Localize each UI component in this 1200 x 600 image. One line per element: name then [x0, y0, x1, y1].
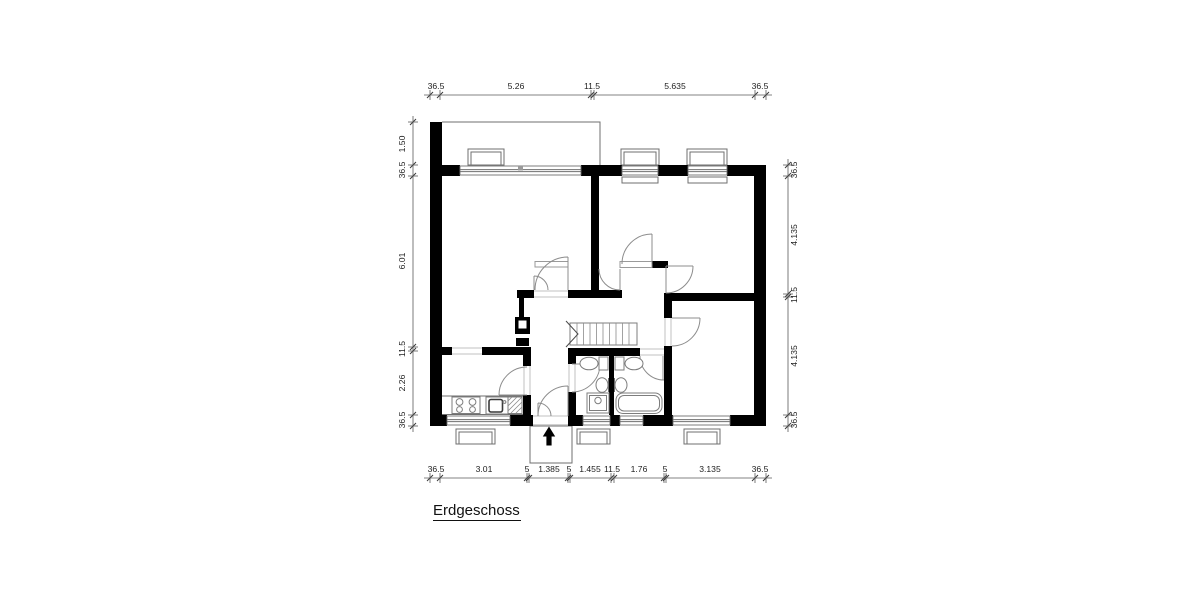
svg-text:1.385: 1.385: [538, 464, 560, 474]
drawing-title-block: Erdgeschoss: [433, 502, 521, 521]
floor-plan-sheet: 36.55.2611.55.63536.536.53.0151.38551.45…: [0, 0, 1200, 600]
toilet: [580, 357, 608, 370]
window: [688, 166, 727, 175]
hall-corridor-door: [599, 269, 620, 290]
bathroom2-fixtures: [615, 357, 663, 414]
svg-text:4.135: 4.135: [789, 345, 799, 367]
staircase: [566, 321, 637, 347]
svg-text:1.455: 1.455: [579, 464, 601, 474]
svg-text:5.26: 5.26: [508, 81, 525, 91]
svg-text:11.5: 11.5: [604, 464, 620, 474]
right-room-lower-door: [672, 318, 700, 346]
svg-text:36.5: 36.5: [397, 411, 407, 428]
svg-text:11.5: 11.5: [789, 287, 799, 303]
window: [460, 166, 581, 175]
svg-text:36.5: 36.5: [752, 81, 769, 91]
shower-unit: [587, 393, 609, 413]
svg-text:5.635: 5.635: [664, 81, 686, 91]
window: [620, 416, 643, 425]
drawing-title: Erdgeschoss: [433, 502, 520, 519]
svg-text:36.5: 36.5: [752, 464, 769, 474]
kitchen-counter: [442, 396, 523, 415]
kitchen-door: [499, 367, 527, 395]
svg-text:36.5: 36.5: [789, 161, 799, 178]
bathroom1-fixtures: [580, 357, 609, 413]
floor-plan-drawing: 36.55.2611.55.63536.536.53.0151.38551.45…: [0, 0, 1200, 600]
svg-text:2.26: 2.26: [397, 374, 407, 391]
svg-text:5: 5: [525, 464, 530, 474]
svg-text:4.135: 4.135: [789, 224, 799, 246]
washbasin: [596, 378, 609, 393]
window: [622, 166, 658, 175]
window: [447, 416, 510, 425]
svg-text:3.01: 3.01: [476, 464, 493, 474]
window: [673, 416, 730, 425]
window: [583, 416, 610, 425]
kitchen-hob: [452, 397, 480, 414]
washbasin: [615, 378, 628, 393]
terrace-outline: [442, 122, 600, 165]
svg-text:1.50: 1.50: [397, 135, 407, 152]
svg-text:36.5: 36.5: [789, 411, 799, 428]
svg-text:1.76: 1.76: [631, 464, 648, 474]
svg-text:3.135: 3.135: [699, 464, 721, 474]
svg-text:36.5: 36.5: [397, 161, 407, 178]
chimney: [515, 317, 530, 346]
svg-text:6.01: 6.01: [397, 252, 407, 269]
top-right-room-door: [622, 234, 652, 264]
svg-text:11.5: 11.5: [584, 81, 600, 91]
svg-text:5: 5: [663, 464, 668, 474]
kitchen-sink: [486, 397, 508, 414]
svg-text:36.5: 36.5: [428, 464, 445, 474]
svg-text:5: 5: [567, 464, 572, 474]
svg-text:36.5: 36.5: [428, 81, 445, 91]
bath2-door: [640, 356, 664, 380]
entrance-door: [538, 386, 568, 416]
kitchen-drainer: [508, 397, 522, 414]
svg-text:11.5: 11.5: [397, 341, 407, 357]
toilet: [615, 357, 643, 370]
right-room-upper-door: [666, 266, 693, 293]
entrance-arrow-icon: [543, 427, 555, 446]
bathtub: [616, 393, 662, 414]
